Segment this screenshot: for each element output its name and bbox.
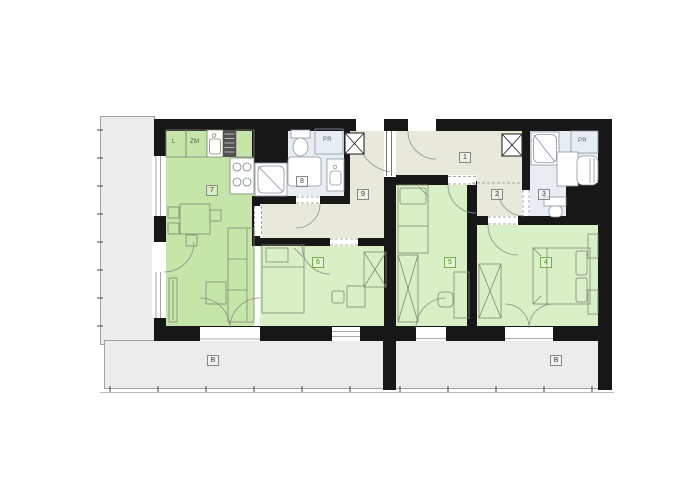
room6-door-gap: [330, 238, 358, 246]
room-label-1: 1: [459, 152, 471, 163]
room-9-floor-lower: [260, 202, 384, 244]
kitchen-cabinet-l-label: L: [172, 139, 176, 146]
terrace-label-left: B: [207, 355, 219, 366]
closet-pr-label-bath8: PR: [323, 137, 332, 144]
room-label-2: 2: [491, 189, 503, 200]
room-label-4: 4: [540, 257, 552, 268]
sink-vanity-icon: [327, 159, 344, 191]
bath-cabinet: [557, 152, 578, 186]
hall-passage-gap: [254, 206, 262, 236]
terrace-left: [105, 341, 385, 389]
washer-icon: [577, 156, 598, 185]
floor-plan: 7 8 9 1 2 3 4 5 6 B B L ZM PR PR: [0, 0, 700, 500]
terrace-right: [396, 341, 608, 389]
toilet-bowl-icon: [293, 138, 308, 156]
room6-window-gap: [332, 327, 360, 341]
wall-right: [598, 119, 612, 341]
wall-kitchen-bath-chunk: [252, 121, 288, 164]
wall-room1-bottom: [396, 175, 448, 185]
entry-leaf-gap: [384, 131, 396, 177]
room-label-3: 3: [538, 189, 550, 200]
closet-pr-label-bath3: PR: [578, 138, 587, 145]
room-label-8: 8: [296, 176, 308, 187]
window-left-1: [152, 156, 166, 216]
room-label-9: 9: [357, 189, 369, 200]
stove-icon: [230, 158, 254, 194]
entry-gap-left-apartment: [356, 119, 384, 131]
room-label-5: 5: [444, 257, 456, 268]
room5-door-gap: [448, 175, 476, 185]
balcony-door-gap: [152, 242, 166, 272]
terrace-label-right: B: [550, 355, 562, 366]
kitchen-cabinet-zm-label: ZM: [190, 139, 199, 146]
floor-plan-drawing: [0, 0, 700, 500]
entry-gap-right-apartment: [408, 119, 436, 131]
room-4-floor: [477, 224, 600, 329]
wall-room5-right: [467, 181, 477, 326]
wall-bath3-chunk: [566, 183, 600, 225]
room-label-6: 6: [312, 257, 324, 268]
window-left-2: [152, 272, 166, 318]
toilet-tank-icon: [291, 130, 310, 138]
kitchen-drainer: [223, 130, 236, 157]
wall-terrace-right-stub: [598, 326, 612, 390]
balcony: [101, 117, 155, 345]
wall-terrace-divider: [383, 326, 396, 390]
room-label-7: 7: [206, 185, 218, 196]
toilet-bowl-icon: [549, 206, 562, 217]
